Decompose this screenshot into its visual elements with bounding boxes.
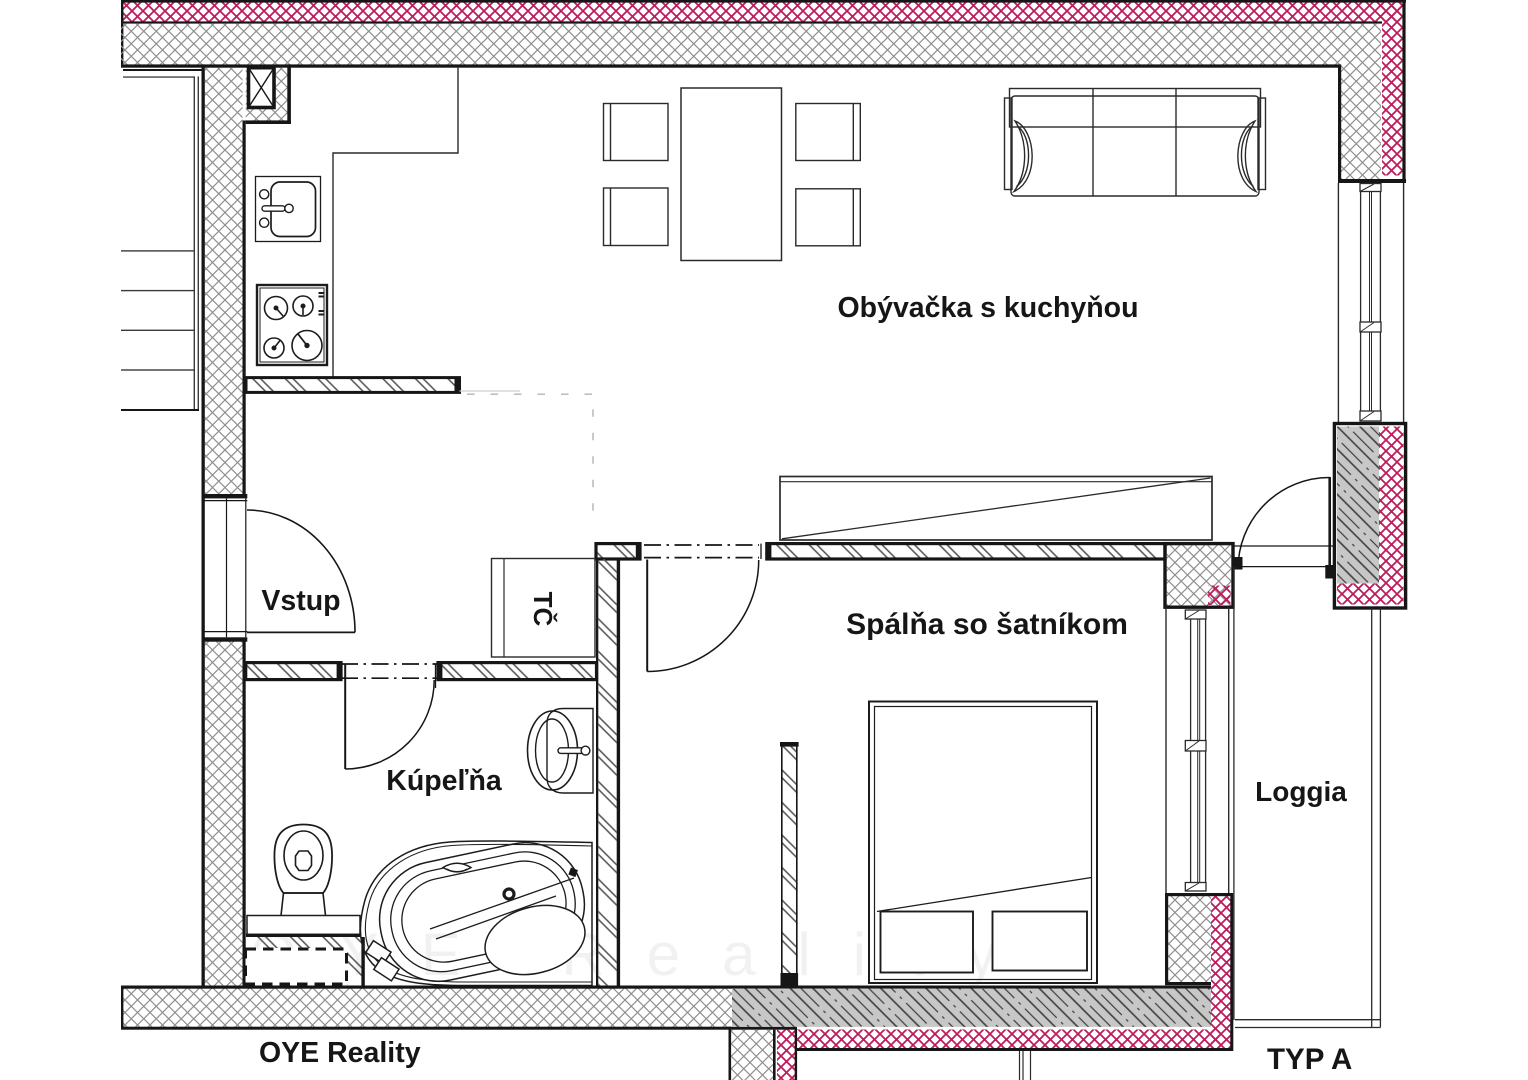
svg-text:Obývačka s kuchyňou: Obývačka s kuchyňou xyxy=(838,292,1139,324)
svg-text:OYE Reality: OYE Reality xyxy=(259,1037,421,1069)
svg-text:TYP A: TYP A xyxy=(1267,1043,1352,1076)
svg-text:Loggia: Loggia xyxy=(1255,776,1347,807)
svg-text:Kúpeľňa: Kúpeľňa xyxy=(386,765,503,797)
svg-text:Spálňa so šatníkom: Spálňa so šatníkom xyxy=(846,608,1128,641)
svg-text:Vstup: Vstup xyxy=(261,585,340,617)
svg-text:TČ: TČ xyxy=(528,592,558,627)
